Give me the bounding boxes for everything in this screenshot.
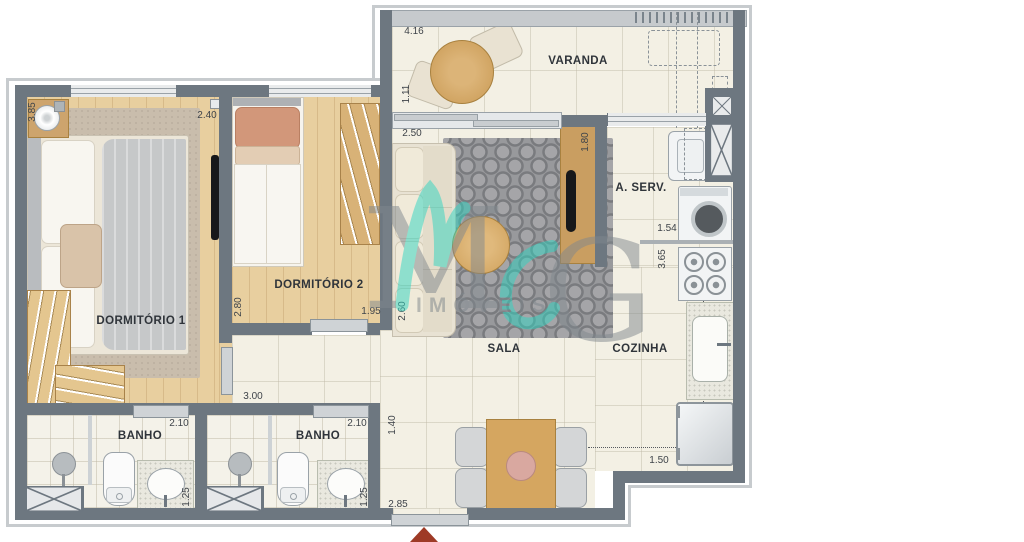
toilet-icon [103, 452, 135, 506]
shaft-icon [710, 122, 733, 178]
banho1-door [133, 405, 189, 418]
dim-banho1-width: 2.10 [160, 418, 198, 430]
toilet-icon [277, 452, 309, 506]
duct-dashed-line [697, 12, 698, 128]
faucet-icon [164, 495, 167, 507]
bed-fold [235, 146, 300, 165]
dim-cozinha-width: 1.50 [640, 455, 678, 467]
dim-dining-depth: 1.40 [387, 406, 399, 444]
outline-varanda-left [372, 5, 375, 81]
shaft-icon [712, 96, 732, 116]
bed-duvet [234, 164, 301, 264]
outline-bottom [6, 524, 628, 527]
throw-pillow [60, 224, 102, 288]
dim-varanda-depth: 1.11 [401, 75, 413, 113]
centerpiece [506, 451, 536, 481]
shower-icon [228, 452, 252, 476]
wall-varanda-left [380, 10, 392, 140]
railing-hatch [635, 12, 733, 23]
dim-banho1-depth: 1.25 [181, 478, 193, 516]
entrance-door [391, 514, 469, 526]
shower-glass [88, 415, 92, 485]
dim-sala-width: 2.50 [393, 128, 431, 140]
dim-dorm1-width: 2.40 [188, 110, 226, 122]
dining-chair [455, 427, 489, 467]
kitchen-counter [686, 302, 734, 400]
dim-varanda-width: 4.16 [395, 26, 433, 38]
entrance-arrow-icon [410, 527, 438, 542]
nightstand-tray [54, 101, 65, 112]
shaft-icon [204, 486, 264, 512]
wall-bottom [15, 508, 625, 520]
shower-icon [52, 452, 76, 476]
outline-right [749, 5, 752, 487]
label-banho2: BANHO [296, 430, 340, 442]
kitchen-sink-icon [692, 316, 728, 382]
sliding-door-varanda [392, 112, 562, 129]
wall-dorm-divider [219, 97, 232, 343]
dining-chair [553, 468, 587, 508]
window-dorm2 [268, 85, 372, 97]
outline-step [628, 485, 631, 527]
watermark-brand: IMÓVEIS [416, 293, 553, 317]
balcony-table [430, 40, 494, 104]
dim-banho2-width: 2.10 [338, 418, 376, 430]
wardrobe [55, 365, 125, 404]
fridge-icon [676, 402, 734, 466]
dorm1-door [221, 347, 233, 395]
label-banho1: BANHO [118, 430, 162, 442]
single-bed [232, 97, 304, 267]
banho2-door [313, 405, 369, 418]
washing-machine-icon [678, 186, 732, 244]
outline-left [6, 78, 9, 527]
faucet-icon [717, 343, 731, 346]
dining-table [486, 419, 556, 512]
wall-right [733, 10, 745, 483]
bed-headboard [233, 98, 301, 106]
watermark-logo: M G IMÓVEIS [350, 150, 660, 350]
floor-plan: VARANDA DORMITÓRIO 1 DORMITÓRIO 2 SALA C… [0, 0, 1024, 542]
outline-kitchen-bottom [628, 485, 752, 488]
outline-top [6, 78, 382, 81]
optional-counter-dashed [648, 30, 720, 66]
label-dorm1: DORMITÓRIO 1 [96, 315, 185, 327]
wall-kitchen-bottom [613, 471, 745, 483]
dining-chair [455, 468, 489, 508]
outline-varanda-top [372, 5, 752, 8]
wall-left [15, 85, 27, 520]
faucet-icon [344, 495, 347, 507]
stove-icon [678, 247, 732, 301]
dim-hall-width: 3.00 [234, 391, 272, 403]
dim-dorm1-depth: 3.85 [27, 93, 39, 131]
dim-dorm2-depth: 2.80 [233, 288, 245, 326]
dim-banho2-depth: 1.25 [359, 478, 371, 516]
window-aserv [607, 113, 707, 126]
duct-dashed-line [676, 12, 677, 128]
shaft-icon [24, 486, 84, 512]
label-varanda: VARANDA [548, 55, 607, 67]
tv-icon [211, 155, 219, 240]
window-dorm1 [70, 85, 177, 97]
watermark-letter-g: G [542, 211, 654, 350]
bed-pillow-orange [235, 107, 300, 149]
shower-glass [268, 415, 272, 485]
dim-dining-width: 2.85 [379, 499, 417, 511]
dining-chair [553, 427, 587, 467]
